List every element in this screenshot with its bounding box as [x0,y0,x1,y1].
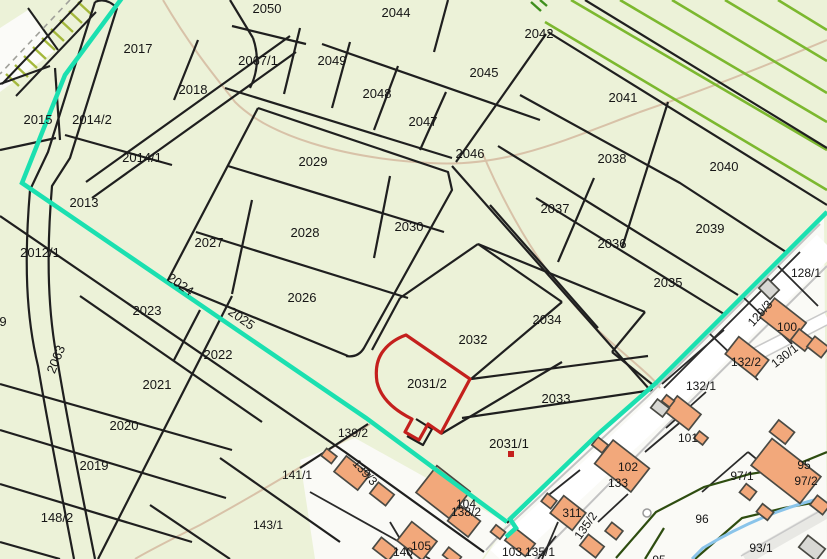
parcel-label-2031-2: 2031/2 [407,376,447,391]
parcel-label-2017: 2017 [124,41,153,56]
parcel-label-2047: 2047 [409,114,438,129]
parcel-label-97-2: 97/2 [794,474,818,488]
parcel-label-138-2: 138/2 [451,505,481,519]
parcel-label-132-1: 132/1 [686,379,716,393]
parcel-label-2034: 2034 [533,312,562,327]
parcel-label-97-1: 97/1 [730,469,754,483]
parcel-label-2044: 2044 [382,5,411,20]
parcel-label-2033: 2033 [542,391,571,406]
parcel-label-2015: 2015 [24,112,53,127]
parcel-label-143-1: 143/1 [253,518,283,532]
parcel-label-2012-1: 2012/1 [20,245,60,260]
parcel-label-135-1: 135/1 [525,545,555,559]
parcel-label-132-2: 132/2 [731,355,761,369]
parcel-label-102: 102 [618,460,638,474]
parcel-label-2050: 2050 [253,1,282,16]
parcel-label-2027: 2027 [195,235,224,250]
parcel-label-95: 95 [652,553,666,559]
parcel-label-2020: 2020 [110,418,139,433]
parcel-label-2042: 2042 [525,26,554,41]
parcel-label-2032: 2032 [459,332,488,347]
parcel-label-9: 9 [0,314,7,329]
parcel-label-2030: 2030 [395,219,424,234]
parcel-label-2039: 2039 [696,221,725,236]
parcel-label-2021: 2021 [143,377,172,392]
parcel-label-2041: 2041 [609,90,638,105]
parcel-label-101: 101 [678,431,698,445]
parcel-label-148-2: 148/2 [41,510,74,525]
parcel-label-133: 133 [608,476,628,490]
parcel-label-2019: 2019 [80,458,109,473]
parcel-label-2067-1: 2067/1 [238,53,278,68]
map-canvas[interactable]: 20502044204220172067/1204920452018204820… [0,0,827,559]
parcel-label-100: 100 [777,320,797,334]
parcel-label-2049: 2049 [318,53,347,68]
parcel-label-2035: 2035 [654,275,683,290]
parcel-label-2038: 2038 [598,151,627,166]
parcel-label-2037: 2037 [541,201,570,216]
parcel-label-128-1: 128/1 [791,266,821,280]
utility-pole-symbol [643,509,651,517]
parcel-label-140: 140 [393,545,413,559]
parcel-label-2013: 2013 [70,195,99,210]
parcel-label-2036: 2036 [598,236,627,251]
parcel-marker-dot [508,451,514,457]
parcel-label-2045: 2045 [470,65,499,80]
parcel-label-2040: 2040 [710,159,739,174]
parcel-label-2046: 2046 [456,146,485,161]
parcel-label-2014-1: 2014/1 [122,150,162,165]
parcel-label-96: 96 [695,512,709,526]
parcel-label-2023: 2023 [133,303,162,318]
parcel-label-105: 105 [411,539,431,553]
parcel-label-2018: 2018 [179,82,208,97]
parcel-label-2029: 2029 [299,154,328,169]
parcel-label-141-1: 141/1 [282,468,312,482]
parcel-label-103: 103 [502,545,522,559]
parcel-label-139-2: 139/2 [338,426,368,440]
parcel-label-2014-2: 2014/2 [72,112,112,127]
cadastral-map[interactable]: 20502044204220172067/1204920452018204820… [0,0,827,559]
parcel-label-93-1: 93/1 [749,541,773,555]
parcel-label-311: 311 [562,506,581,520]
parcel-label-2022: 2022 [204,347,233,362]
parcel-label-2026: 2026 [288,290,317,305]
parcel-label-2031-1: 2031/1 [489,436,529,451]
parcel-label-2048: 2048 [363,86,392,101]
parcel-label-95: 95 [797,458,811,472]
parcel-label-2028: 2028 [291,225,320,240]
